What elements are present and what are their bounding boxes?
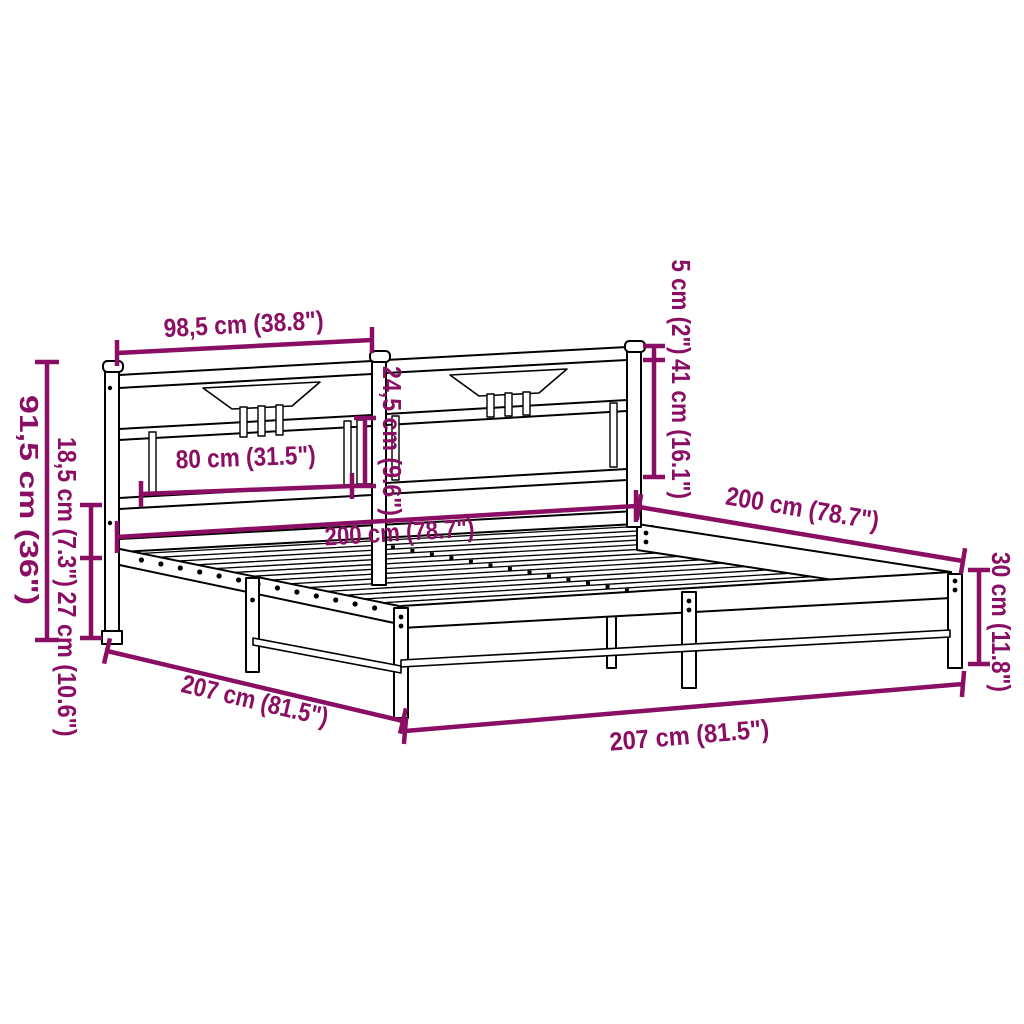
dim-headboard-upper-height-label: 41 cm (16.1") <box>666 359 696 499</box>
dim-panel-opening-height-label: 24,5 cm (9.6") <box>377 366 407 516</box>
dim-headboard-section-width-label: 98,5 cm (38.8") <box>163 305 324 343</box>
stretcher-bars <box>253 630 950 673</box>
dim-panel-opening-width-label: 80 cm (31.5") <box>175 440 316 475</box>
dim-post-top-offset-label: 5 cm (2") <box>666 260 696 355</box>
dim-frame-top-height-label: 18,5 cm (7.3") <box>52 437 82 587</box>
dim-headboard-section-width: 98,5 cm (38.8") <box>117 305 372 366</box>
rear-center-leg <box>607 615 616 668</box>
bed-dimension-diagram: 98,5 cm (38.8") 5 cm (2") 41 cm (16.1") … <box>0 0 1024 1024</box>
dim-headboard-upper: 5 cm (2") 41 cm (16.1") <box>643 260 696 500</box>
dimension-annotations: 98,5 cm (38.8") 5 cm (2") 41 cm (16.1") … <box>14 260 1016 757</box>
diagram-canvas: 98,5 cm (38.8") 5 cm (2") 41 cm (16.1") … <box>0 0 1024 1024</box>
dim-underbed-clearance-label: 27 cm (10.6") <box>52 592 82 737</box>
dim-frame-length-label: 207 cm (81.5") <box>179 668 332 732</box>
dim-bed-length-label: 200 cm (78.7") <box>724 481 882 536</box>
dim-side-rail-height: 30 cm (11.8") <box>968 552 1016 692</box>
dim-side-rail-height-label: 30 cm (11.8") <box>986 552 1016 692</box>
dim-frame-heights: 18,5 cm (7.3") 27 cm (10.6") <box>52 437 102 737</box>
dim-frame-width-label: 207 cm (81.5") <box>608 713 770 756</box>
dim-headboard-total-height-label: 91,5 cm (36") <box>14 395 44 605</box>
